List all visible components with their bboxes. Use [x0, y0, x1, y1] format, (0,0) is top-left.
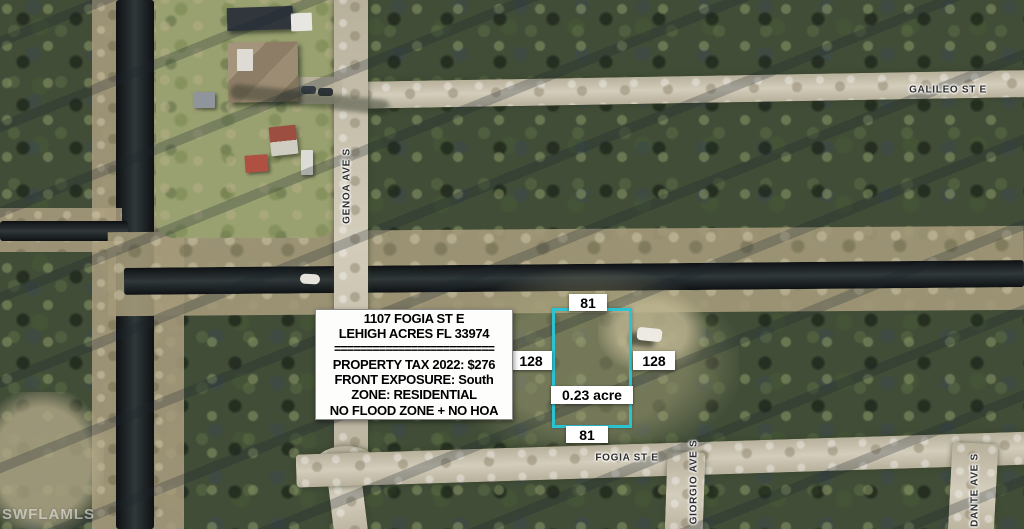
street-label-genoa: GENOA AVE S: [342, 148, 353, 224]
long-shed: [227, 6, 294, 31]
lot-dimension-right: 128: [633, 351, 675, 370]
street-label-fogia: FOGIA ST E: [595, 453, 658, 464]
white-trailer: [301, 150, 313, 175]
property-tax: PROPERTY TAX 2022: $276: [316, 357, 512, 372]
long-shed-white-end: [291, 13, 313, 32]
property-info-box: 1107 FOGIA ST E LEHIGH ACRES FL 33974 ==…: [315, 309, 513, 420]
lot-boundary-outline: [552, 308, 632, 428]
homestead-lawn: [156, 0, 342, 238]
mls-watermark: SWFLAMLS: [2, 506, 95, 523]
red-roof-barn: [269, 125, 299, 157]
lot-dimension-bottom: 81: [566, 426, 608, 443]
lot-dimension-top: 81: [569, 294, 607, 311]
street-label-galileo: GALILEO ST E: [909, 85, 987, 96]
gray-shed: [193, 92, 215, 108]
street-label-giorgio: GIORGIO AVE S: [689, 440, 700, 525]
white-vehicle-near-lot: [636, 327, 662, 343]
property-address-line2: LEHIGH ACRES FL 33974: [316, 326, 512, 341]
garage: [237, 49, 253, 71]
lot-area-label: 0.23 acre: [551, 386, 633, 404]
red-shed: [244, 154, 268, 173]
aerial-photo: GALILEO ST E GENOA AVE S FOGIA ST E GIOR…: [0, 0, 1024, 529]
zoning: ZONE: RESIDENTIAL: [316, 387, 512, 402]
info-divider: =========================: [316, 342, 512, 357]
property-address-line1: 1107 FOGIA ST E: [316, 311, 512, 326]
boat: [300, 273, 320, 284]
front-exposure: FRONT EXPOSURE: South: [316, 372, 512, 387]
flood-hoa-note: NO FLOOD ZONE + NO HOA: [316, 403, 512, 418]
lot-dimension-left: 128: [510, 351, 552, 370]
street-label-dante: DANTE AVE S: [970, 453, 981, 527]
